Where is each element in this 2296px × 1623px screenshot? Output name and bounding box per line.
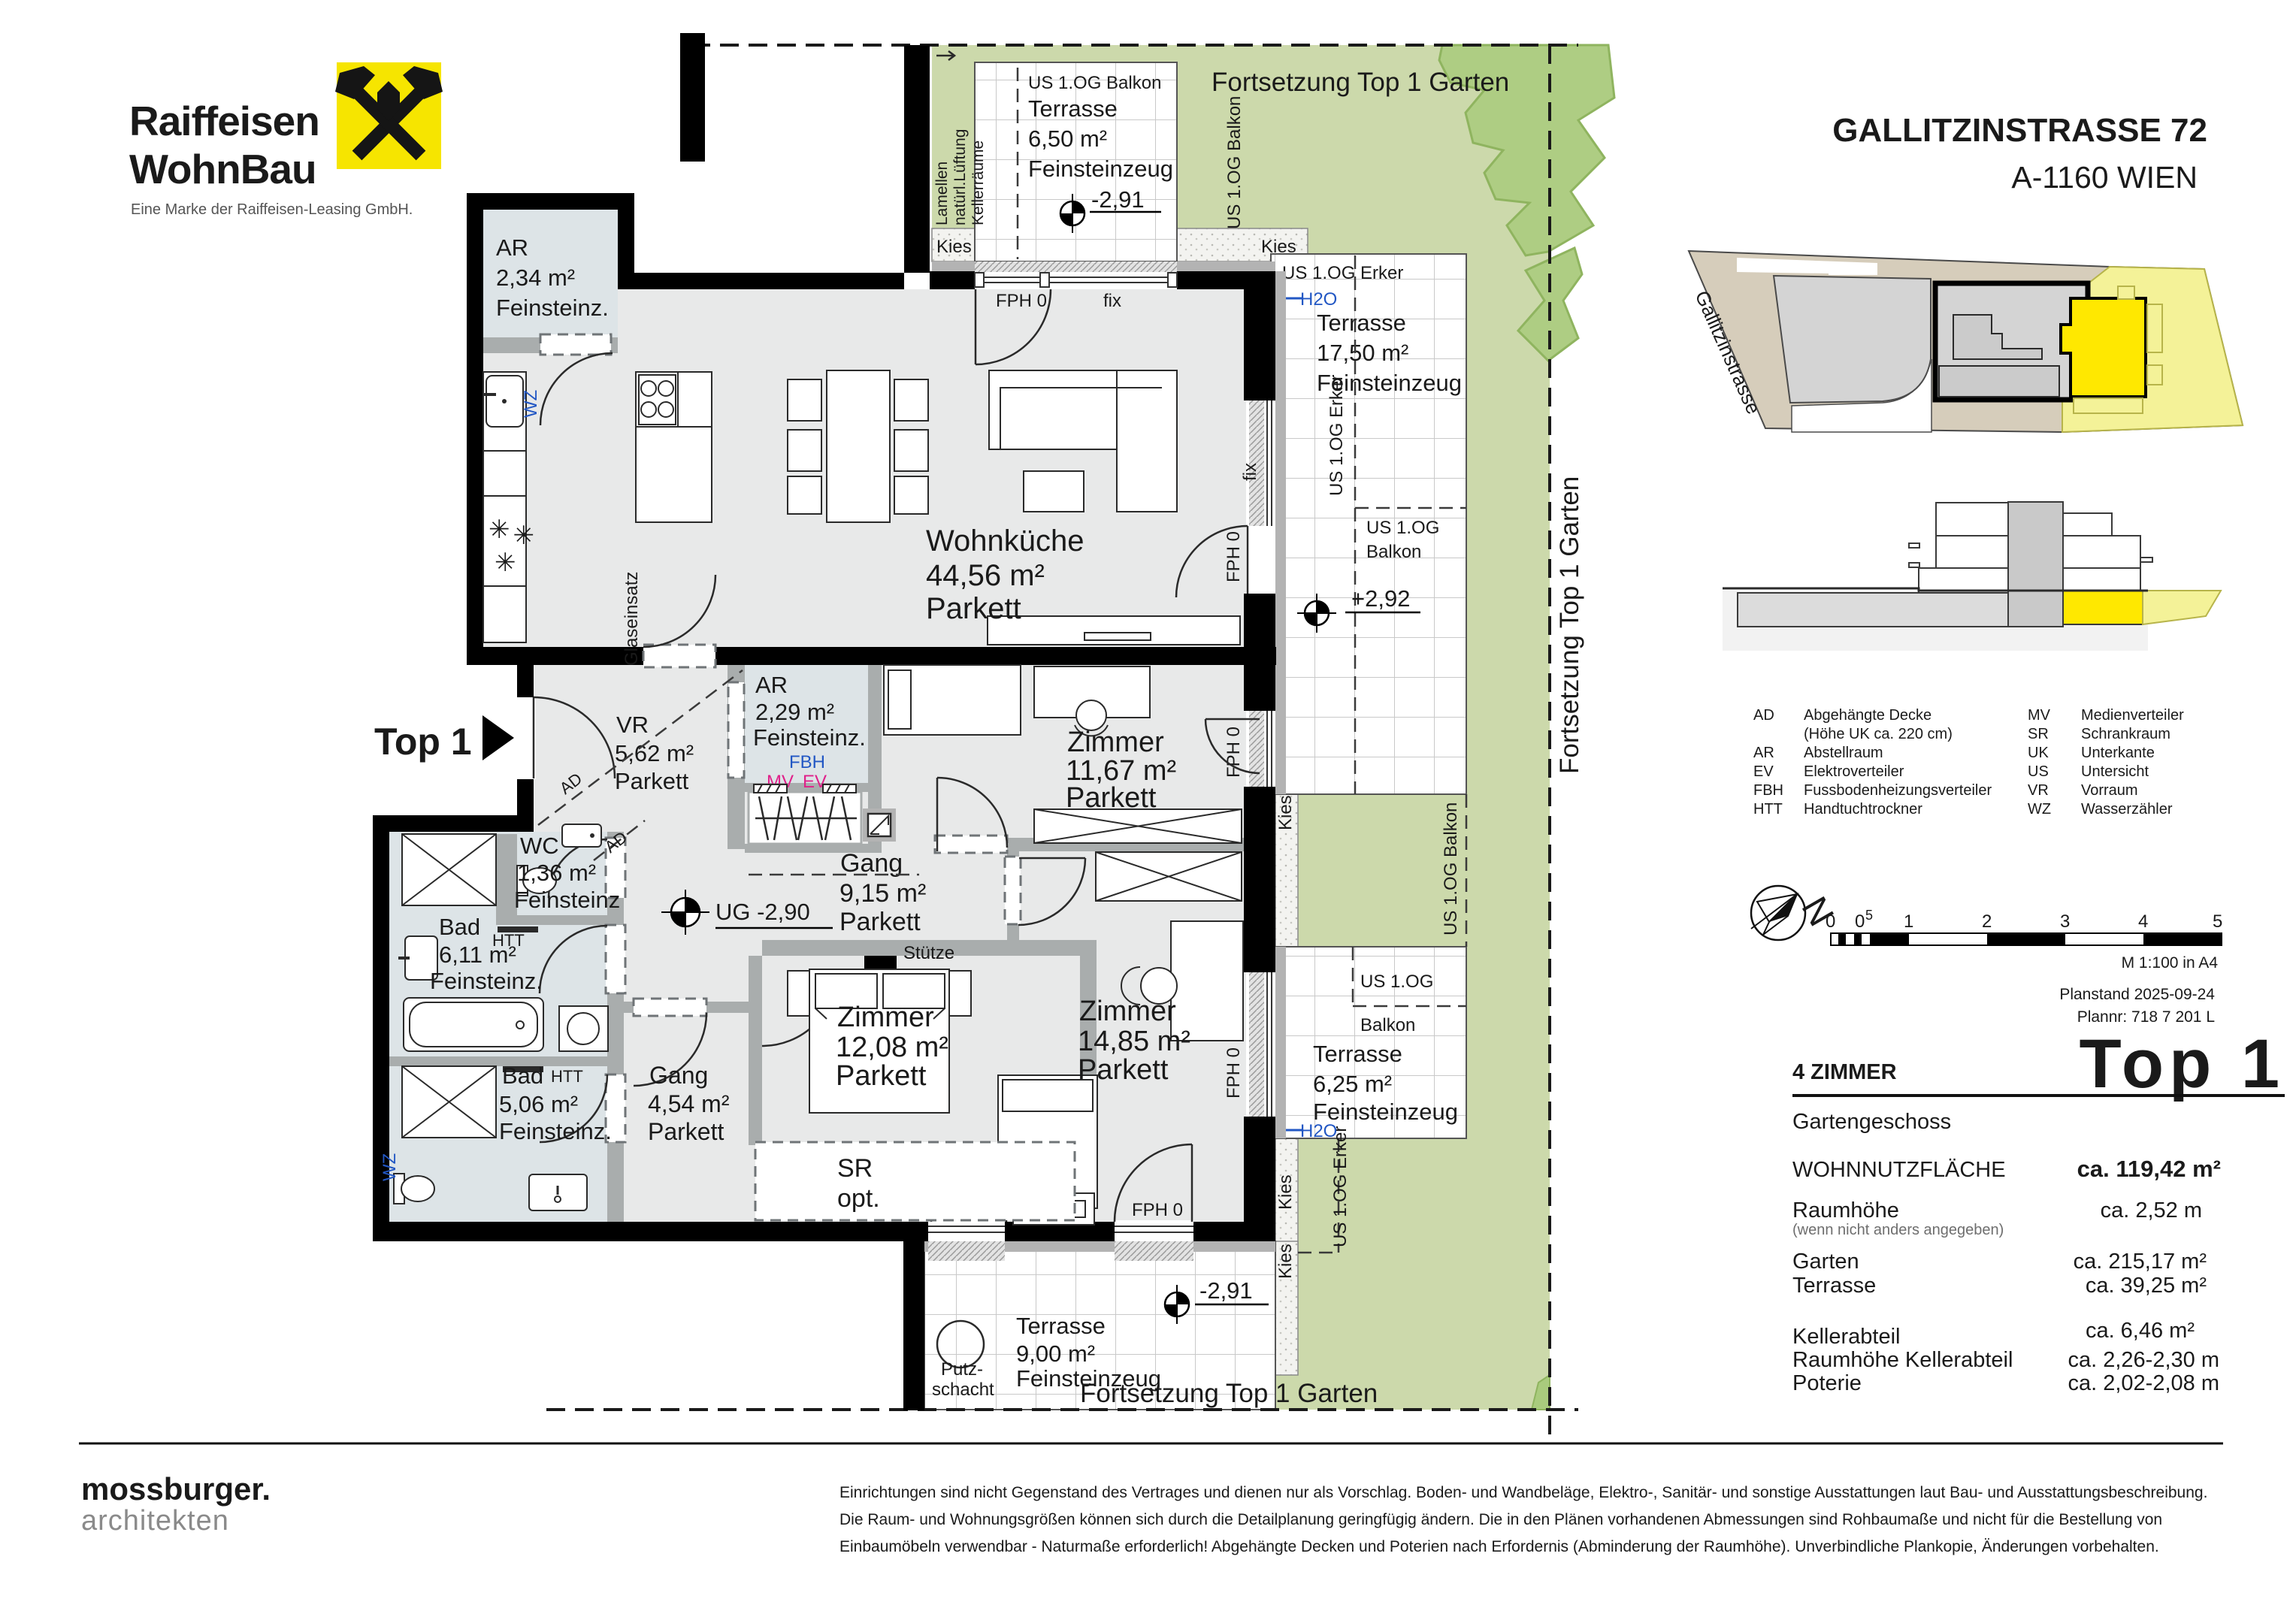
svg-text:2,29 m²: 2,29 m²: [755, 699, 834, 725]
svg-text:Elektroverteiler: Elektroverteiler: [1804, 763, 1904, 780]
svg-text:0: 0: [1855, 911, 1865, 932]
svg-text:FBH: FBH: [1753, 782, 1783, 799]
svg-text:HTT: HTT: [551, 1067, 583, 1086]
svg-text:Gang: Gang: [840, 849, 903, 878]
svg-text:Fortsetzung Top 1 Garten: Fortsetzung Top 1 Garten: [1212, 68, 1509, 97]
svg-text:Parkett: Parkett: [615, 768, 689, 794]
svg-text:ca. 119,42 m²: ca. 119,42 m²: [2077, 1156, 2221, 1182]
svg-text:Bad: Bad: [502, 1062, 543, 1089]
svg-text:Abstellraum: Abstellraum: [1804, 745, 1883, 761]
svg-text:Zimmer: Zimmer: [1067, 727, 1164, 758]
svg-text:VR: VR: [2028, 782, 2049, 799]
svg-text:ca. 215,17 m²: ca. 215,17 m²: [2074, 1250, 2207, 1274]
svg-text:US 1.OG Erker: US 1.OG Erker: [1282, 263, 1403, 283]
svg-text:Parkett: Parkett: [1066, 782, 1157, 814]
svg-text:HTT: HTT: [1753, 801, 1783, 818]
svg-text:FPH 0: FPH 0: [1224, 531, 1244, 582]
svg-text:Kies: Kies: [1275, 795, 1296, 830]
svg-text:Garten: Garten: [1792, 1250, 1859, 1274]
svg-text:0: 0: [1826, 911, 1835, 932]
svg-text:9,00 m²: 9,00 m²: [1016, 1340, 1095, 1367]
svg-text:Kies: Kies: [1261, 237, 1296, 257]
svg-text:Balkon: Balkon: [1366, 542, 1421, 562]
svg-text:9,15 m²: 9,15 m²: [839, 879, 926, 908]
svg-text:Zimmer: Zimmer: [837, 1002, 934, 1033]
svg-text:Abgehängte Decke: Abgehängte Decke: [1804, 707, 1931, 724]
svg-text:Raiffeisen: Raiffeisen: [129, 98, 319, 144]
svg-text:Wohnküche: Wohnküche: [926, 524, 1084, 558]
svg-text:Planstand 2025-09-24: Planstand 2025-09-24: [2059, 986, 2215, 1003]
svg-text:Feinsteinzeug: Feinsteinzeug: [1016, 1365, 1161, 1392]
svg-text:✳: ✳: [495, 549, 516, 577]
svg-text:fix: fix: [1240, 463, 1260, 481]
svg-text:4: 4: [2138, 911, 2148, 932]
svg-text:Feinsteinz.: Feinsteinz.: [753, 724, 866, 751]
svg-text:ca. 2,52 m: ca. 2,52 m: [2101, 1198, 2202, 1223]
svg-text:AR: AR: [1753, 745, 1774, 761]
svg-text:Parkett: Parkett: [648, 1118, 724, 1145]
svg-text:Schrankraum: Schrankraum: [2081, 726, 2170, 742]
svg-text:WOHNNUTZFLÄCHE: WOHNNUTZFLÄCHE: [1792, 1158, 2006, 1182]
svg-text:H2O: H2O: [1300, 289, 1337, 310]
svg-text:5,06 m²: 5,06 m²: [499, 1091, 578, 1117]
svg-text:1,36 m²: 1,36 m²: [517, 860, 596, 886]
svg-text:Poterie: Poterie: [1792, 1371, 1862, 1395]
svg-text:Untersicht: Untersicht: [2081, 763, 2149, 780]
svg-text:44,56 m²: 44,56 m²: [926, 559, 1045, 592]
svg-text:12,08 m²: 12,08 m²: [836, 1032, 948, 1063]
svg-text:Kellerabteil: Kellerabteil: [1792, 1325, 1900, 1349]
svg-text:FPH 0: FPH 0: [996, 291, 1047, 311]
svg-text:Glaseinsatz: Glaseinsatz: [622, 572, 642, 666]
svg-text:1: 1: [1904, 911, 1913, 932]
svg-text:-2,91: -2,91: [1199, 1277, 1253, 1304]
svg-text:Kies: Kies: [936, 237, 972, 257]
svg-text:Kies: Kies: [1275, 1174, 1296, 1210]
svg-text:Vorraum: Vorraum: [2081, 782, 2138, 799]
svg-text:FPH 0: FPH 0: [1224, 1047, 1244, 1099]
svg-text:WZ: WZ: [380, 1153, 400, 1181]
svg-text:UK: UK: [2028, 745, 2049, 761]
svg-text:Parkett: Parkett: [926, 592, 1021, 625]
svg-text:SR: SR: [2028, 726, 2049, 742]
svg-text:SR: SR: [837, 1154, 873, 1183]
svg-text:FPH 0: FPH 0: [1132, 1200, 1183, 1220]
svg-text:Parkett: Parkett: [1078, 1054, 1169, 1086]
svg-text:US 1.OG Balkon: US 1.OG Balkon: [1441, 802, 1461, 935]
svg-text:Putz-: Putz-: [941, 1359, 983, 1380]
svg-text:ca. 2,26-2,30 m: ca. 2,26-2,30 m: [2068, 1348, 2220, 1372]
svg-text:Gang: Gang: [649, 1062, 708, 1089]
svg-text:5,62 m²: 5,62 m²: [615, 740, 694, 766]
svg-text:Feinsteinzeug: Feinsteinzeug: [1028, 156, 1173, 182]
svg-text:VR: VR: [616, 712, 649, 738]
svg-text:schacht: schacht: [932, 1380, 994, 1400]
svg-text:Terrasse: Terrasse: [1313, 1041, 1402, 1067]
svg-text:US 1.OG Balkon: US 1.OG Balkon: [1224, 96, 1245, 229]
svg-text:Die Raum- und Wohnungsgrößen k: Die Raum- und Wohnungsgrößen können sich…: [839, 1511, 2162, 1528]
svg-text:Terrasse: Terrasse: [1317, 310, 1406, 336]
svg-text:Eine Marke der Raiffeisen-Leas: Eine Marke der Raiffeisen-Leasing GmbH.: [131, 201, 413, 218]
svg-text:AR: AR: [496, 234, 528, 261]
svg-text:natürl.Lüftung: natürl.Lüftung: [951, 129, 969, 225]
svg-text:-2,91: -2,91: [1091, 186, 1145, 213]
svg-text:ca. 6,46 m²: ca. 6,46 m²: [2086, 1319, 2195, 1343]
svg-text:Terrasse: Terrasse: [1028, 95, 1118, 122]
svg-text:US 1.OG: US 1.OG: [1366, 518, 1439, 538]
svg-text:Handtuchtrockner: Handtuchtrockner: [1804, 801, 1922, 818]
svg-text:Kellerräume: Kellerräume: [970, 141, 987, 225]
svg-text:Bad: Bad: [439, 914, 480, 940]
svg-text:architekten: architekten: [81, 1505, 229, 1537]
svg-text:WohnBau: WohnBau: [129, 146, 316, 192]
svg-text:6,25 m²: 6,25 m²: [1313, 1071, 1392, 1097]
svg-text:GALLITZINSTRASSE 72: GALLITZINSTRASSE 72: [1832, 112, 2207, 149]
svg-text:Feinsteinz.: Feinsteinz.: [499, 1118, 612, 1144]
svg-text:5: 5: [2213, 911, 2222, 932]
svg-text:Parkett: Parkett: [836, 1060, 927, 1092]
svg-text:Fortsetzung Top 1 Garten: Fortsetzung Top 1 Garten: [1555, 476, 1584, 774]
svg-text:(wenn nicht anders angegeben): (wenn nicht anders angegeben): [1792, 1222, 2004, 1238]
svg-text:4,54 m²: 4,54 m²: [648, 1090, 730, 1117]
svg-text:ca. 2,02-2,08 m: ca. 2,02-2,08 m: [2068, 1371, 2220, 1395]
svg-text:2: 2: [1982, 911, 1992, 932]
svg-text:US 1.OG Erker: US 1.OG Erker: [1326, 375, 1347, 496]
svg-text:+2,92: +2,92: [1351, 585, 1410, 612]
svg-text:Parkett: Parkett: [839, 908, 921, 936]
svg-text:Feinsteinz.: Feinsteinz.: [496, 295, 609, 321]
svg-text:WZ: WZ: [2028, 801, 2051, 818]
svg-text:Fussbodenheizungsverteiler: Fussbodenheizungsverteiler: [1804, 782, 1992, 799]
svg-text:Terrasse: Terrasse: [1016, 1313, 1106, 1339]
svg-text:Gartengeschoss: Gartengeschoss: [1792, 1110, 1951, 1134]
svg-text:M 1:100 in A4: M 1:100 in A4: [2122, 954, 2219, 972]
svg-text:AR: AR: [755, 672, 788, 698]
svg-text:Lamellen: Lamellen: [933, 162, 951, 225]
svg-text:Einbaumöbeln verwendbar - Natu: Einbaumöbeln verwendbar - Naturmaße erfo…: [839, 1538, 2159, 1555]
svg-text:mossburger.: mossburger.: [81, 1471, 271, 1507]
svg-text:US 1.OG Balkon: US 1.OG Balkon: [1028, 73, 1161, 93]
svg-text:Medienverteiler: Medienverteiler: [2081, 707, 2184, 724]
svg-text:WZ: WZ: [521, 390, 541, 418]
svg-text:EV: EV: [1753, 763, 1774, 780]
svg-text:Balkon: Balkon: [1360, 1015, 1415, 1035]
svg-text:A-1160 WIEN: A-1160 WIEN: [2011, 160, 2198, 195]
svg-text:AD: AD: [1753, 707, 1774, 724]
svg-text:17,50 m²: 17,50 m²: [1317, 340, 1408, 366]
svg-text:WC: WC: [520, 833, 559, 859]
svg-text:Raumhöhe: Raumhöhe: [1792, 1198, 1899, 1223]
svg-text:(Höhe UK ca. 220 cm): (Höhe UK ca. 220 cm): [1804, 726, 1953, 742]
svg-text:Plannr: 718 7 201 L: Plannr: 718 7 201 L: [2077, 1008, 2215, 1026]
svg-text:US: US: [2028, 763, 2049, 780]
svg-text:Feinsteinz.: Feinsteinz.: [430, 968, 543, 994]
svg-text:US 1.OG: US 1.OG: [1360, 972, 1433, 992]
svg-text:Kies: Kies: [1275, 1244, 1296, 1279]
svg-text:UG -2,90: UG -2,90: [715, 899, 810, 925]
svg-text:Terrasse: Terrasse: [1792, 1274, 1876, 1298]
svg-text:5: 5: [1865, 908, 1873, 923]
svg-text:MV: MV: [2028, 707, 2051, 724]
svg-text:3: 3: [2060, 911, 2070, 932]
svg-text:Top 1: Top 1: [2080, 1026, 2285, 1102]
svg-text:Zimmer: Zimmer: [1079, 996, 1176, 1027]
svg-text:Wasserzähler: Wasserzähler: [2081, 801, 2173, 818]
svg-text:4 ZIMMER: 4 ZIMMER: [1792, 1060, 1897, 1084]
svg-text:14,85 m²: 14,85 m²: [1078, 1026, 1190, 1057]
svg-text:Unterkante: Unterkante: [2081, 745, 2155, 761]
svg-text:fix: fix: [1103, 291, 1121, 311]
svg-text:ca. 39,25 m²: ca. 39,25 m²: [2086, 1274, 2207, 1298]
svg-text:Top 1: Top 1: [374, 721, 472, 763]
svg-text:6,50 m²: 6,50 m²: [1028, 125, 1107, 152]
svg-text:6,11 m²: 6,11 m²: [439, 941, 516, 968]
svg-text:Feinsteinz: Feinsteinz: [514, 887, 620, 913]
svg-text:FBH: FBH: [789, 752, 825, 772]
svg-text:opt.: opt.: [837, 1184, 880, 1213]
svg-text:2,34 m²: 2,34 m²: [496, 264, 575, 291]
svg-text:Einrichtungen sind nicht Gegen: Einrichtungen sind nicht Gegenstand des …: [839, 1484, 2207, 1501]
svg-text:US 1.OG Erker: US 1.OG Erker: [1330, 1126, 1351, 1247]
svg-text:Raumhöhe Kellerabteil: Raumhöhe Kellerabteil: [1792, 1348, 2013, 1372]
svg-text:Stütze: Stütze: [903, 943, 954, 963]
